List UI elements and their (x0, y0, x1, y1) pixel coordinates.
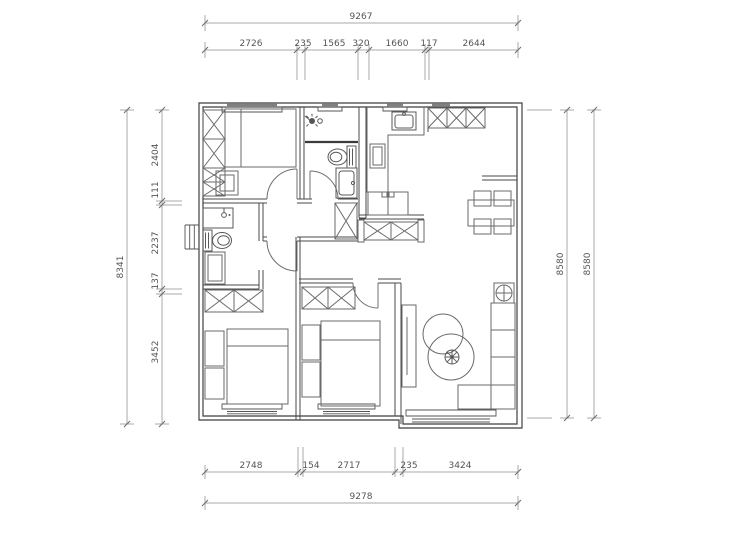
washbasin-icon (336, 168, 357, 198)
dimensions-bottom: 2748 154 2717 235 3424 9278 (202, 447, 521, 510)
nightstand (302, 325, 320, 397)
inner-wall-face (203, 107, 517, 424)
outer-walls (199, 103, 522, 428)
dim-label: 8580 (583, 252, 593, 275)
wardrobe-icon (203, 110, 225, 196)
tv-cabinet-icon (402, 305, 416, 387)
dim-label: 3424 (449, 461, 472, 471)
chair (474, 191, 511, 234)
cooktop-icon (370, 144, 385, 168)
dim-label: 2748 (240, 461, 263, 471)
toilet-icon (328, 146, 356, 168)
side-table-icon (494, 283, 514, 303)
dim-label: 137 (151, 272, 161, 289)
dimensions-top: 9267 2726 235 1565 320 1660 117 2644 (202, 12, 521, 80)
outer-wall-face (199, 103, 522, 428)
nightstand (216, 171, 238, 195)
window-hatch-left (185, 225, 199, 249)
washing-machine-icon (368, 192, 408, 215)
kitchen-sink-icon (392, 112, 416, 130)
shower-head-icon (305, 114, 322, 127)
dim-label: 8580 (556, 252, 566, 275)
coffee-table (423, 314, 463, 354)
hallway-cabinets (335, 203, 424, 242)
dim-label: 320 (352, 39, 369, 49)
window-hatch-top (227, 104, 450, 105)
dim-label: 2404 (151, 143, 161, 166)
dining-area (468, 191, 514, 234)
dim-label: 2717 (338, 461, 361, 471)
kitchen (367, 107, 485, 215)
dim-label: 1660 (386, 39, 409, 49)
bathroom-2 (203, 208, 233, 284)
dim-label: 3452 (151, 341, 161, 364)
upper-cabinet-x-row (428, 108, 485, 128)
dim-label-top-overall: 9267 (350, 12, 373, 22)
dim-label: 111 (151, 181, 161, 198)
bedroom-1 (203, 109, 296, 196)
dim-label: 2237 (151, 232, 161, 255)
toilet-icon (203, 230, 232, 251)
bed (225, 109, 296, 167)
dim-label: 1565 (323, 39, 346, 49)
windows (185, 104, 496, 422)
wardrobe-icon (205, 290, 263, 312)
shower-tray (205, 252, 225, 284)
vanity-counter (203, 208, 233, 228)
bed (321, 321, 380, 406)
dim-label: 235 (400, 461, 417, 471)
shoe-cabinet-x-row (358, 220, 424, 242)
sofa-icon (458, 303, 515, 409)
interior-walls (203, 107, 517, 424)
living-room (402, 283, 515, 409)
floor-plan-canvas: 9267 2726 235 1565 320 1660 117 2644 274… (0, 0, 740, 550)
dimensions-left: 8341 2404 111 2237 137 3452 (116, 107, 182, 427)
dim-label: 2644 (463, 39, 486, 49)
hall-cabinet-x-box (335, 203, 357, 239)
dim-label: 235 (294, 39, 311, 49)
bathroom-1 (305, 114, 358, 198)
dimensions-right: 8580 8580 (527, 107, 601, 421)
wardrobe-icon (302, 287, 355, 309)
bedroom-3 (302, 287, 380, 406)
bedroom-2 (205, 290, 288, 404)
potted-plant-icon (445, 350, 460, 365)
bed (227, 329, 288, 404)
dim-label: 154 (302, 461, 319, 471)
dim-label: 2726 (240, 39, 263, 49)
dim-label-bottom-overall: 9278 (350, 492, 373, 502)
dim-label-left-overall: 8341 (116, 256, 126, 279)
nightstand (205, 331, 224, 399)
dim-label: 117 (420, 39, 437, 49)
